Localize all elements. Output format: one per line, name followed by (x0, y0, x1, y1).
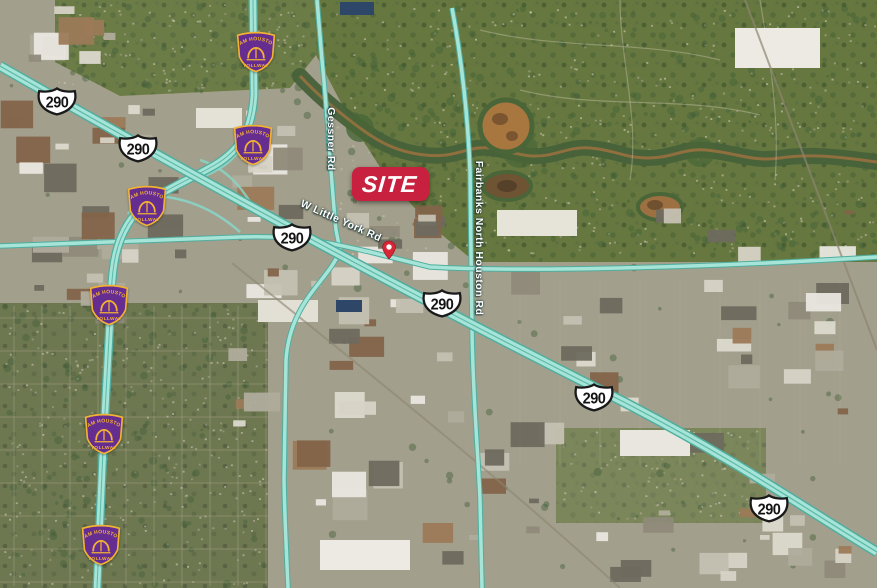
us-290-route-shield: 290 (573, 383, 615, 412)
sam-houston-tollway-shield: SAM HOUSTONTOLLWAY (235, 28, 277, 73)
us-290-route-shield: 290 (421, 289, 463, 318)
site-marker-label: SITE (361, 171, 420, 198)
svg-text:TOLLWAY: TOLLWAY (91, 445, 117, 451)
site-location-pin-icon (381, 240, 397, 260)
satellite-map: Gessner Rd W Little York Rd Fairbanks No… (0, 0, 877, 588)
sam-houston-tollway-shield: SAM HOUSTONTOLLWAY (80, 521, 122, 566)
svg-text:TOLLWAY: TOLLWAY (134, 217, 160, 223)
us-290-route-shield: 290 (748, 494, 790, 523)
svg-text:TOLLWAY: TOLLWAY (243, 63, 269, 69)
route-number: 290 (421, 288, 463, 319)
route-number: 290 (573, 382, 615, 413)
sam-houston-tollway-shield: SAM HOUSTONTOLLWAY (83, 410, 125, 455)
us-290-route-shield: 290 (271, 223, 313, 252)
street-label-gessner-rd: Gessner Rd (325, 107, 337, 170)
route-number: 290 (36, 86, 78, 117)
svg-text:TOLLWAY: TOLLWAY (96, 316, 122, 322)
sam-houston-tollway-shield: SAM HOUSTONTOLLWAY (232, 121, 274, 166)
sam-houston-tollway-shield: SAM HOUSTONTOLLWAY (126, 182, 168, 227)
us-290-route-shield: 290 (36, 87, 78, 116)
svg-text:TOLLWAY: TOLLWAY (240, 156, 266, 162)
route-number: 290 (117, 133, 159, 164)
sam-houston-tollway-shield: SAM HOUSTONTOLLWAY (88, 281, 130, 326)
route-number: 290 (271, 222, 313, 253)
street-label-fairbanks-north-houston-rd: Fairbanks North Houston Rd (473, 161, 485, 316)
us-290-route-shield: 290 (117, 134, 159, 163)
route-number: 290 (748, 493, 790, 524)
site-marker: SITE (352, 167, 429, 201)
svg-text:TOLLWAY: TOLLWAY (88, 556, 114, 562)
